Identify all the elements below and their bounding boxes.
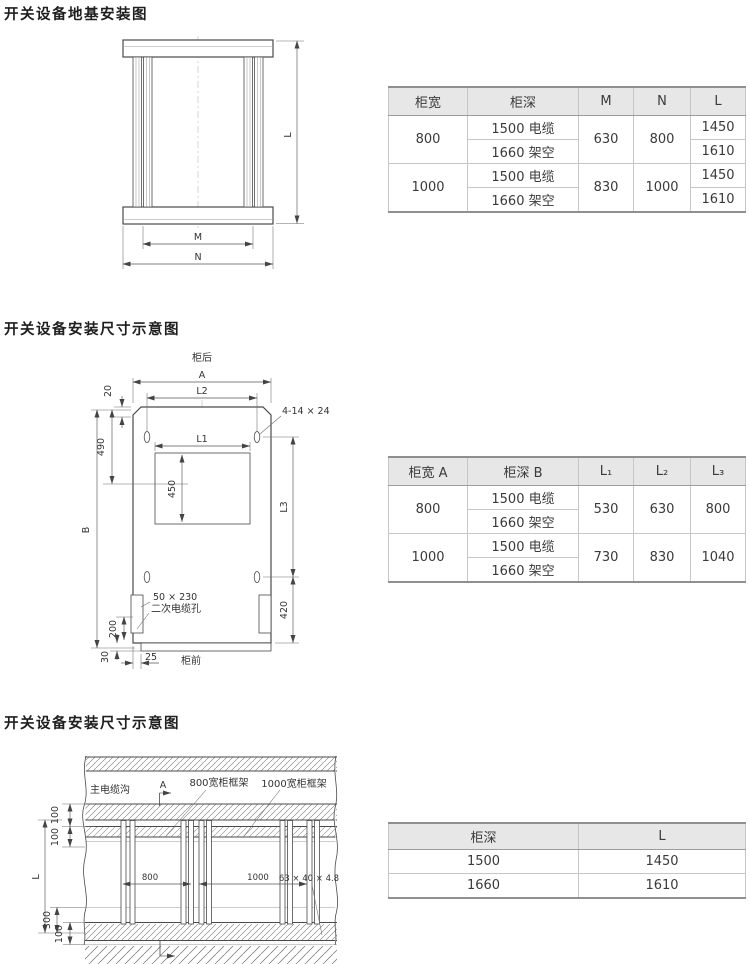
col-header-m: M (579, 87, 634, 116)
cell-l3: 800 (691, 486, 746, 534)
col-header-l3: L₃ (691, 457, 746, 486)
cell-depth: 1500 电缆 (468, 164, 579, 188)
table-row: 1500 1450 (389, 850, 746, 874)
dim-800-label: 800 (142, 873, 158, 883)
cell-depth: 1660 架空 (468, 140, 579, 164)
dim-L1-label: L1 (196, 434, 207, 445)
cell-m: 830 (579, 164, 634, 212)
dim-300-label: 300 (42, 911, 53, 929)
cell-width: 1000 (389, 164, 468, 212)
section1-title: 开关设备地基安装图 (4, 3, 148, 24)
secondary-cable-hole-left (131, 595, 143, 633)
dim-100-bottom: 100 (54, 925, 65, 943)
col-header-depth: 柜深 (468, 87, 579, 116)
mounting-slot (254, 432, 260, 443)
dim-L-label: L (31, 874, 42, 880)
cell-l1: 730 (579, 534, 634, 582)
dim-20-label: 20 (103, 385, 114, 397)
trench-label: 主电缆沟 (90, 783, 130, 796)
mounting-slot (144, 572, 150, 583)
dim-450-label: 450 (167, 480, 178, 498)
mounting-slot (144, 432, 150, 443)
cell-depth: 1500 (389, 850, 579, 874)
cell-l3: 1040 (691, 534, 746, 582)
col-header-n: N (634, 87, 691, 116)
manual-page: 开关设备地基安装图 开关设备安装尺寸示意图 开关设备安装尺寸示意图 (0, 0, 750, 964)
table-row: 1000 1500 电缆 730 830 1040 (389, 534, 746, 558)
cell-m: 630 (579, 116, 634, 164)
cell-n: 800 (634, 116, 691, 164)
slot-spec-label: 4-14 × 24 (282, 406, 330, 417)
dim-L3-label: L3 (279, 501, 290, 512)
cell-l2: 830 (634, 534, 691, 582)
cell-l: 1610 (579, 874, 746, 898)
cell-depth: 1660 架空 (468, 558, 579, 582)
col-header-l: L (691, 87, 746, 116)
foundation-outline (123, 36, 273, 228)
cell-depth: 1500 电缆 (468, 486, 579, 510)
dim-L2-label: L2 (196, 386, 207, 397)
dim-25-label: 25 (145, 652, 157, 663)
frame-800-label: 800宽柜框架 (189, 776, 248, 789)
cell-n: 1000 (634, 164, 691, 212)
cell-l2: 630 (634, 486, 691, 534)
foundation-table: 柜宽 柜深 M N L 800 1500 电缆 630 800 1450 166… (388, 86, 746, 213)
col-header-l1: L₁ (579, 457, 634, 486)
col-header-l2: L₂ (634, 457, 691, 486)
depth-length-table: 柜深 L 1500 1450 1660 1610 (388, 822, 746, 899)
dim-30-label: 30 (100, 651, 111, 663)
cabinet-dimension-diagram: 柜后 A L2 20 490 B L1 450 (0, 340, 375, 688)
cell-depth: 1660 (389, 874, 579, 898)
dim-100-top1: 100 (50, 806, 61, 824)
angle-steel-label: 63 × 40 × 4.8 (279, 874, 339, 884)
table-header-row: 柜宽 A 柜深 B L₁ L₂ L₃ (389, 457, 746, 486)
mounting-slot (254, 572, 260, 583)
foundation-diagram: L M N (0, 30, 375, 295)
cell-width: 800 (389, 486, 468, 534)
table-row: 1660 1610 (389, 874, 746, 898)
table-row: 800 1500 电缆 630 800 1450 (389, 116, 746, 140)
dim-A-label: A (199, 370, 206, 381)
dim-420-label: 420 (279, 601, 290, 619)
section3-title: 开关设备安装尺寸示意图 (4, 712, 180, 733)
cell-l: 1610 (691, 140, 746, 164)
col-header-depth-b: 柜深 B (468, 457, 579, 486)
table-row: 1000 1500 电缆 830 1000 1450 (389, 164, 746, 188)
dim-490-label: 490 (96, 438, 107, 456)
dim-L-label: L (283, 132, 294, 138)
frame-1000-label: 1000宽柜框架 (261, 777, 326, 790)
table-header-row: 柜宽 柜深 M N L (389, 87, 746, 116)
cell-l: 1610 (691, 188, 746, 212)
cell-depth: 1660 架空 (468, 188, 579, 212)
dim-M-label: M (194, 232, 202, 243)
section-A-label: A (160, 780, 167, 791)
break-line-left (83, 756, 87, 945)
cell-width: 800 (389, 116, 468, 164)
front-label: 柜前 (181, 654, 201, 667)
col-header-width: 柜宽 (389, 87, 468, 116)
rear-label: 柜后 (192, 351, 212, 364)
slot-name-label: 二次电缆孔 (151, 602, 201, 615)
col-header-width-a: 柜宽 A (389, 457, 468, 486)
dim-100-top2: 100 (50, 828, 61, 846)
col-header-l: L (579, 823, 746, 850)
section2-title: 开关设备安装尺寸示意图 (4, 318, 180, 339)
dim-B-label: B (81, 527, 92, 534)
cell-depth: 1500 电缆 (468, 534, 579, 558)
cell-width: 1000 (389, 534, 468, 582)
table-header-row: 柜深 L (389, 823, 746, 850)
cell-l: 1450 (579, 850, 746, 874)
secondary-cable-hole-right (259, 595, 271, 633)
dim-N-label: N (194, 252, 201, 263)
slot-size-label: 50 × 230 (153, 592, 197, 603)
col-header-depth: 柜深 (389, 823, 579, 850)
cell-l: 1450 (691, 164, 746, 188)
break-line-right (334, 756, 338, 945)
cell-l1: 530 (579, 486, 634, 534)
table-row: 800 1500 电缆 530 630 800 (389, 486, 746, 510)
trench-labels: 主电缆沟 A 800宽柜框架 1000宽柜框架 63 × 40 × 4.8 (90, 776, 339, 935)
cell-depth: 1500 电缆 (468, 116, 579, 140)
dim-1000-label: 1000 (247, 873, 269, 883)
dim-200-label: 200 (108, 620, 119, 638)
install-dimension-table: 柜宽 A 柜深 B L₁ L₂ L₃ 800 1500 电缆 530 630 8… (388, 456, 746, 583)
cell-l: 1450 (691, 116, 746, 140)
cell-depth: 1660 架空 (468, 510, 579, 534)
trench-plan-diagram: 主电缆沟 A 800宽柜框架 1000宽柜框架 63 × 40 × 4.8 10… (0, 740, 375, 964)
